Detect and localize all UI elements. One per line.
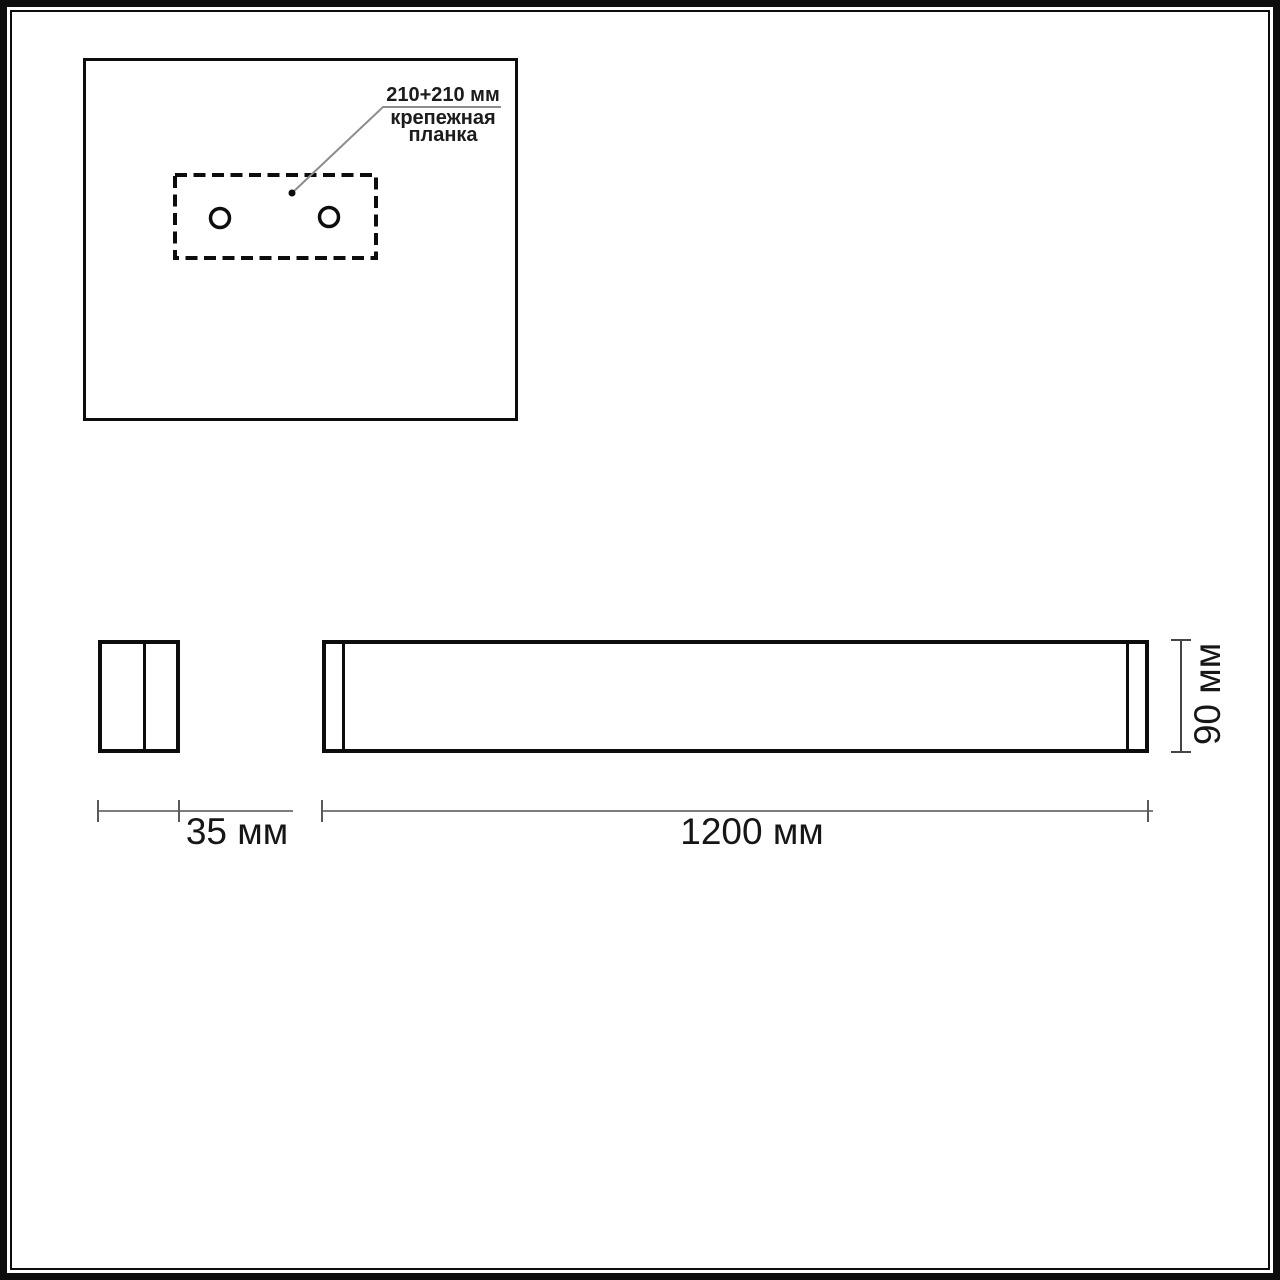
mounting-spacing-label: 210+210 мм [370, 84, 516, 106]
side-view-edge-line [143, 644, 146, 749]
length-dimension-tick-left [321, 800, 323, 822]
side-view-outline [98, 640, 180, 753]
depth-dimension-label: 35 мм [180, 813, 294, 851]
front-view-left-cap-line [342, 644, 345, 749]
mounting-caption: крепежная планка [378, 110, 508, 143]
front-view-outline [322, 640, 1149, 753]
height-dimension-label: 90 мм [1189, 624, 1227, 764]
screw-hole-right [320, 208, 339, 227]
screw-hole-left [211, 209, 230, 228]
dimension-diagram: 210+210 мм крепежная планка 35 мм 1200 м… [0, 0, 1280, 1280]
height-dimension-tick-top [1171, 639, 1191, 641]
height-dimension-tick-bottom [1171, 751, 1191, 753]
depth-dimension-tick-left [97, 800, 99, 822]
length-dimension-label: 1200 мм [640, 813, 864, 851]
length-dimension-tick-right [1147, 800, 1149, 822]
height-dimension-line [1180, 641, 1182, 752]
leader-dot [289, 190, 296, 197]
front-view-right-cap-line [1126, 644, 1129, 749]
mounting-plate-dashed-outline [175, 175, 376, 258]
